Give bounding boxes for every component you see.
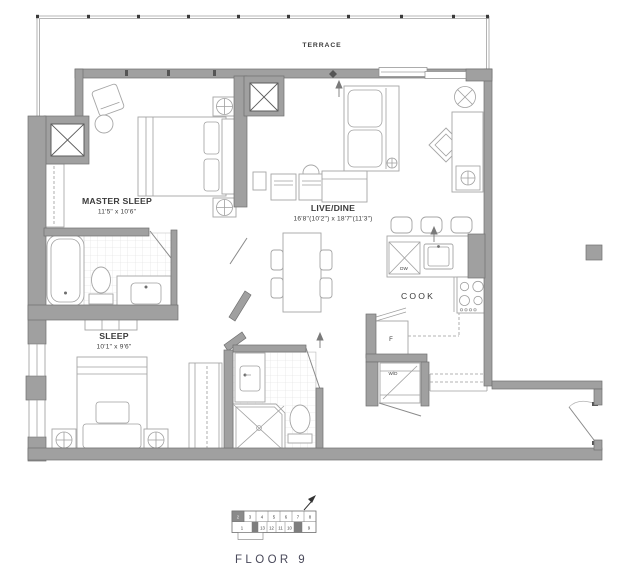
- keyplan-unit-12: 12: [269, 525, 274, 530]
- dining-chair: [320, 278, 332, 298]
- keyplan-unit-13: 13: [260, 525, 265, 530]
- light-fixture-icon: [217, 99, 233, 115]
- master-sleep-dims: 11'5" x 10'6": [98, 209, 137, 216]
- bedroom-closet: [189, 363, 222, 454]
- dishwasher-label: DW: [400, 266, 408, 271]
- nightstand: [213, 198, 236, 217]
- laundry-closet: W/D: [379, 363, 421, 416]
- live-dine-label: LIVE/DINE: [311, 203, 355, 213]
- master-closet: [45, 164, 64, 227]
- column-shaft-icon: [51, 124, 84, 156]
- keyplan: 2 3 4 5 6 7 8 1 13 12 11 10 9: [232, 511, 316, 540]
- kitchen-sink: [424, 244, 453, 269]
- ottoman: [253, 172, 266, 190]
- sleep-label: SLEEP: [99, 331, 129, 341]
- north-arrow-icon: [304, 495, 316, 510]
- armchair: [271, 174, 296, 200]
- floorplan-drawing: TERRACE: [0, 0, 639, 582]
- stove: [457, 277, 487, 313]
- vanity-sink: [117, 276, 171, 306]
- column-shaft-icon: [250, 83, 278, 111]
- vanity-sink: [235, 353, 265, 402]
- dining-chair: [271, 278, 283, 298]
- terrace-railing-posts: [36, 15, 489, 18]
- bar-stool: [391, 217, 412, 233]
- bed: [77, 357, 147, 451]
- light-fixture-icon: [461, 171, 475, 185]
- light-fixture-icon: [56, 432, 72, 448]
- nightstand: [213, 97, 236, 116]
- armchair: [91, 83, 124, 116]
- toilet: [288, 405, 312, 443]
- master-bed: [138, 117, 235, 196]
- keyplan-unit-11: 11: [278, 525, 283, 530]
- window: [29, 344, 45, 376]
- side-table: [95, 115, 113, 133]
- live-dine-dims: 16'8"(10'2") x 18'7"(11'3"): [293, 216, 372, 223]
- fridge: F: [374, 308, 408, 355]
- washer-dryer-label: W/D: [389, 371, 399, 376]
- media-console: [452, 112, 483, 192]
- dining-chair: [271, 250, 283, 270]
- living-dining: [271, 86, 483, 312]
- bar-stool: [451, 217, 472, 233]
- fridge-label: F: [389, 337, 393, 343]
- terrace-label: TERRACE: [302, 42, 341, 49]
- corridor-wall-stub: [586, 245, 602, 260]
- armchair: [299, 174, 324, 200]
- entry-door: [569, 407, 597, 444]
- dining-chair: [320, 250, 332, 270]
- second-bedroom: [52, 318, 222, 454]
- light-fixture-icon: [387, 158, 397, 168]
- cook-label: COOK: [401, 291, 435, 301]
- floorplan-page: TERRACE: [0, 0, 639, 582]
- laundry-door: [379, 403, 421, 416]
- window: [29, 400, 45, 437]
- bench: [322, 171, 367, 202]
- bar-stool: [421, 217, 442, 233]
- dining-table: [283, 233, 321, 312]
- master-suite-door: [230, 238, 247, 264]
- sofa: [344, 86, 399, 171]
- floor-label: FLOOR 9: [235, 554, 308, 566]
- light-fixture-icon: [217, 200, 233, 216]
- shower-icon: [233, 404, 285, 452]
- sleep-dims: 10'1" x 9'6": [97, 344, 132, 351]
- bathtub: [47, 235, 84, 306]
- ceiling-fan-icon: [455, 87, 476, 108]
- keyplan-unit-10: 10: [287, 525, 292, 530]
- light-fixture-icon: [148, 432, 164, 448]
- master-sleep-label: MASTER SLEEP: [82, 196, 152, 206]
